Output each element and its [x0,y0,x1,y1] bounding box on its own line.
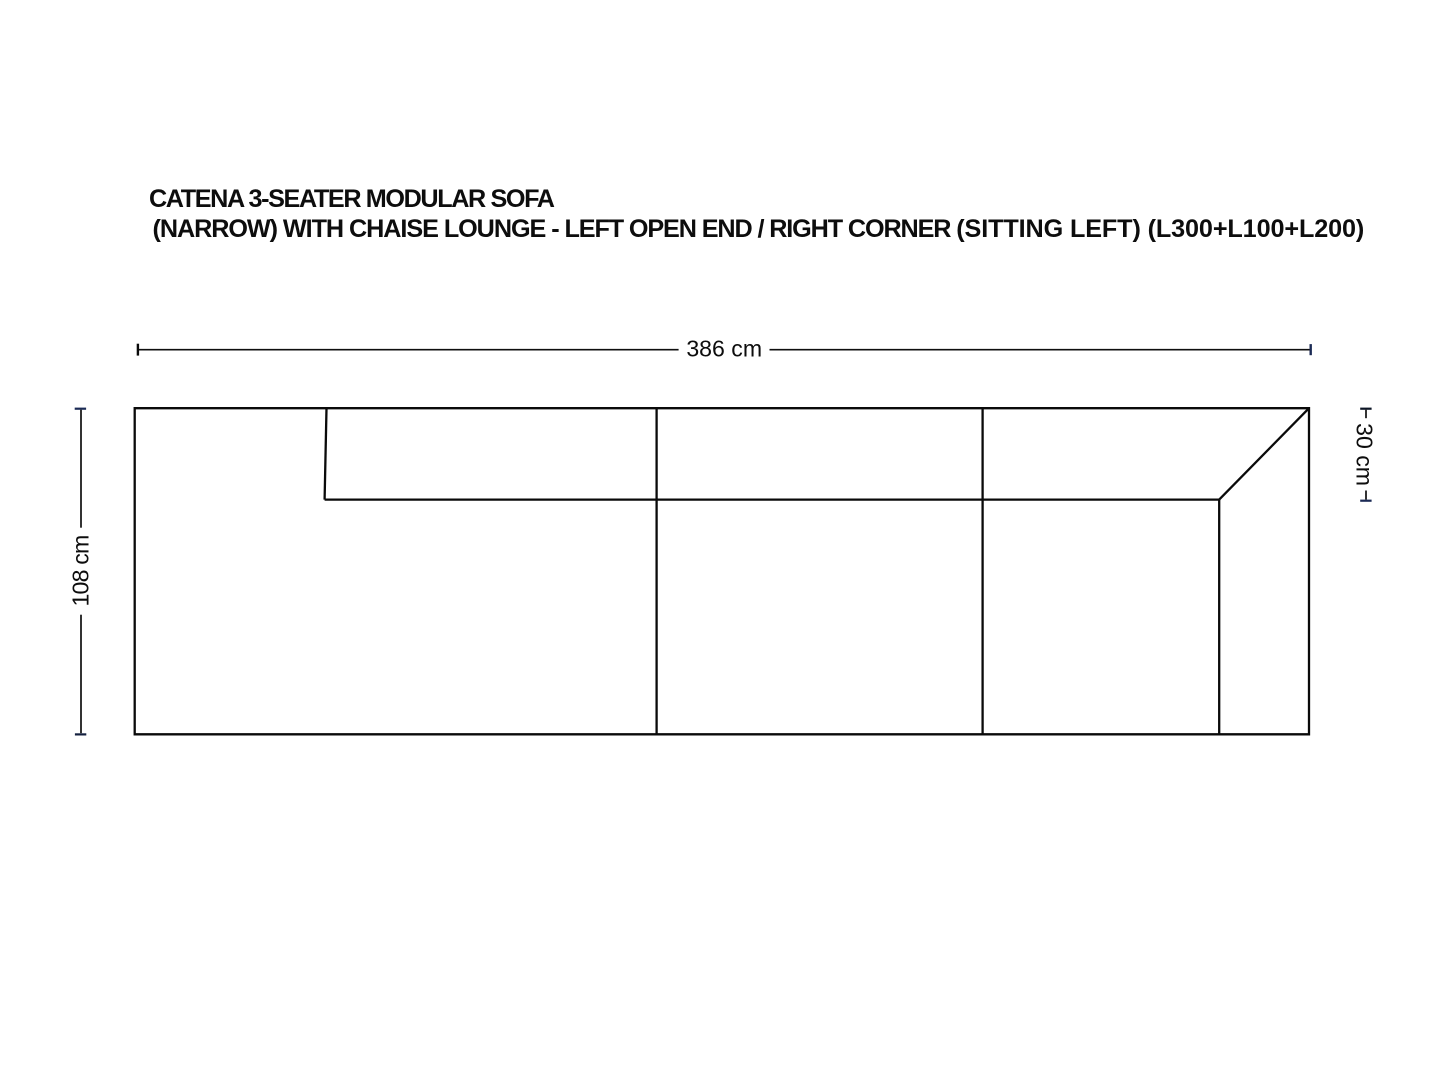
svg-text:30 cm: 30 cm [1352,423,1378,486]
svg-text:386 cm: 386 cm [686,336,762,362]
svg-text:108 cm: 108 cm [68,536,94,607]
